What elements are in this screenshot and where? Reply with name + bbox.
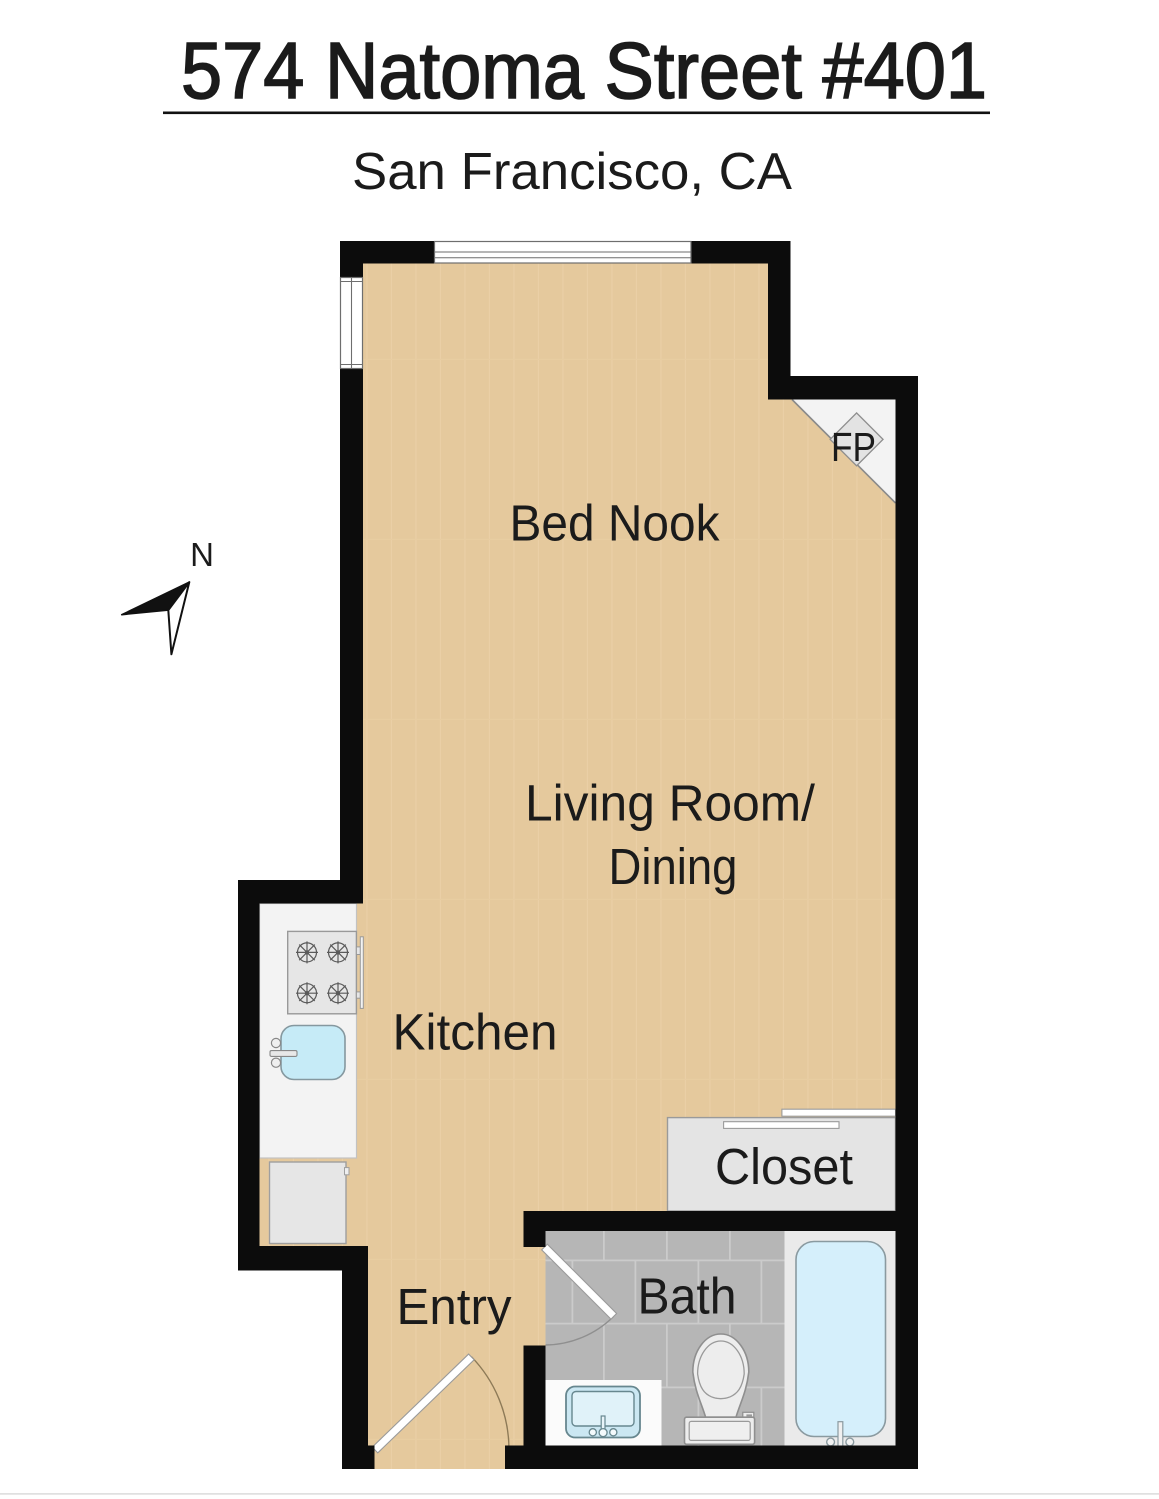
svg-text:574 Natoma Street #401: 574 Natoma Street #401 bbox=[181, 26, 987, 115]
svg-text:Dining: Dining bbox=[609, 838, 738, 895]
svg-text:Kitchen: Kitchen bbox=[393, 1004, 558, 1061]
svg-text:San Francisco, CA: San Francisco, CA bbox=[352, 143, 792, 201]
svg-text:N: N bbox=[190, 536, 214, 573]
svg-text:Closet: Closet bbox=[715, 1138, 853, 1195]
svg-text:FP: FP bbox=[831, 424, 876, 470]
svg-text:Living Room/: Living Room/ bbox=[525, 775, 816, 832]
svg-text:Entry: Entry bbox=[397, 1278, 512, 1335]
svg-text:Bath: Bath bbox=[638, 1268, 737, 1325]
svg-text:Bed Nook: Bed Nook bbox=[510, 495, 720, 552]
